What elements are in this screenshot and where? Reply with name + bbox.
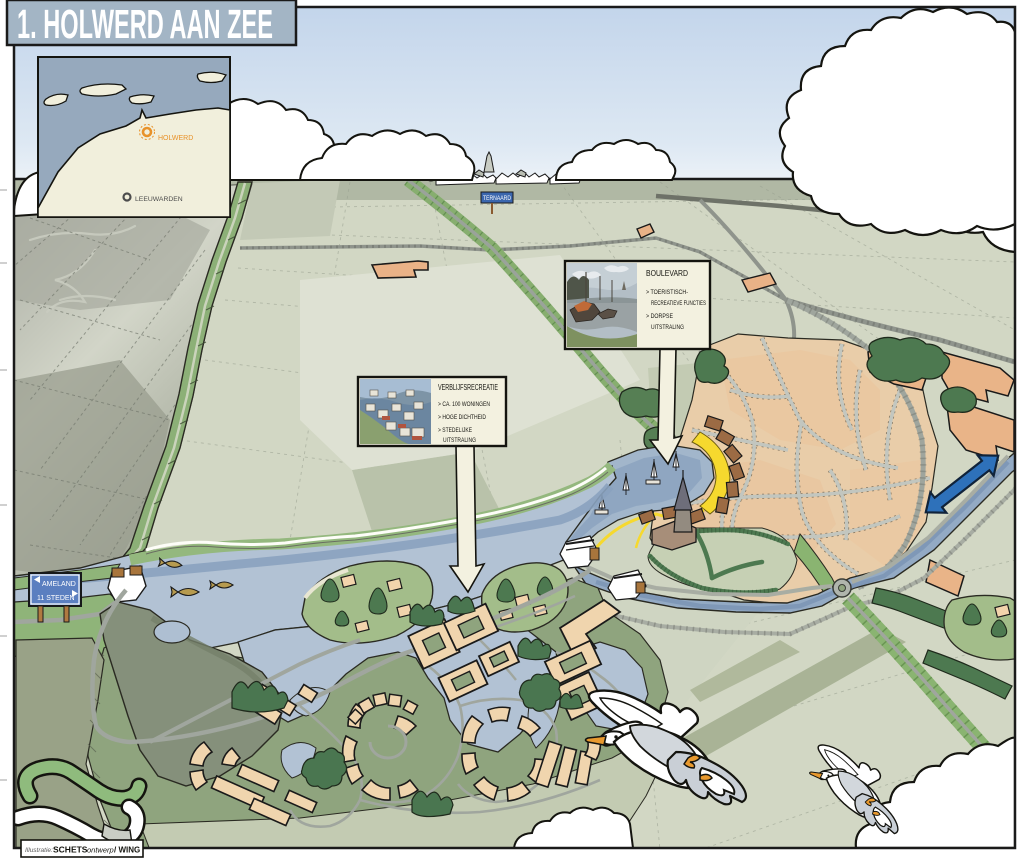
svg-text:UITSTRALING: UITSTRALING (443, 437, 476, 444)
svg-text:> DORPSE: > DORPSE (646, 313, 674, 320)
svg-text:1. HOLWERD AAN ZEE: 1. HOLWERD AAN ZEE (17, 1, 273, 47)
svg-text:ontwerp: ontwerp (87, 846, 114, 855)
svg-text:AMELAND: AMELAND (42, 581, 76, 588)
svg-text:BOULEVARD: BOULEVARD (646, 269, 688, 278)
svg-text:UITSTRALING: UITSTRALING (651, 324, 684, 331)
svg-text:HOLWERD: HOLWERD (158, 135, 193, 142)
svg-text:> STEDELIJKE: > STEDELIJKE (438, 427, 472, 434)
svg-text:LEEUWARDEN: LEEUWARDEN (135, 196, 183, 203)
svg-text:/ WING: / WING (114, 846, 140, 855)
svg-text:RECREATIEVE FUNCTIES: RECREATIEVE FUNCTIES (651, 300, 706, 307)
svg-text:SCHETS: SCHETS (53, 845, 88, 855)
svg-text:VERBLIJFSRECREATIE: VERBLIJFSRECREATIE (438, 383, 498, 392)
svg-text:> TOERISTISCH-: > TOERISTISCH- (646, 289, 688, 296)
svg-text:> CA. 100 WONINGEN: > CA. 100 WONINGEN (438, 401, 490, 408)
svg-text:> HOGE DICHTHEID: > HOGE DICHTHEID (438, 414, 486, 421)
svg-text:Illustratie:: Illustratie: (25, 847, 53, 854)
svg-text:TERNAARD: TERNAARD (483, 196, 512, 202)
svg-text:11 STEDEN: 11 STEDEN (37, 595, 75, 602)
